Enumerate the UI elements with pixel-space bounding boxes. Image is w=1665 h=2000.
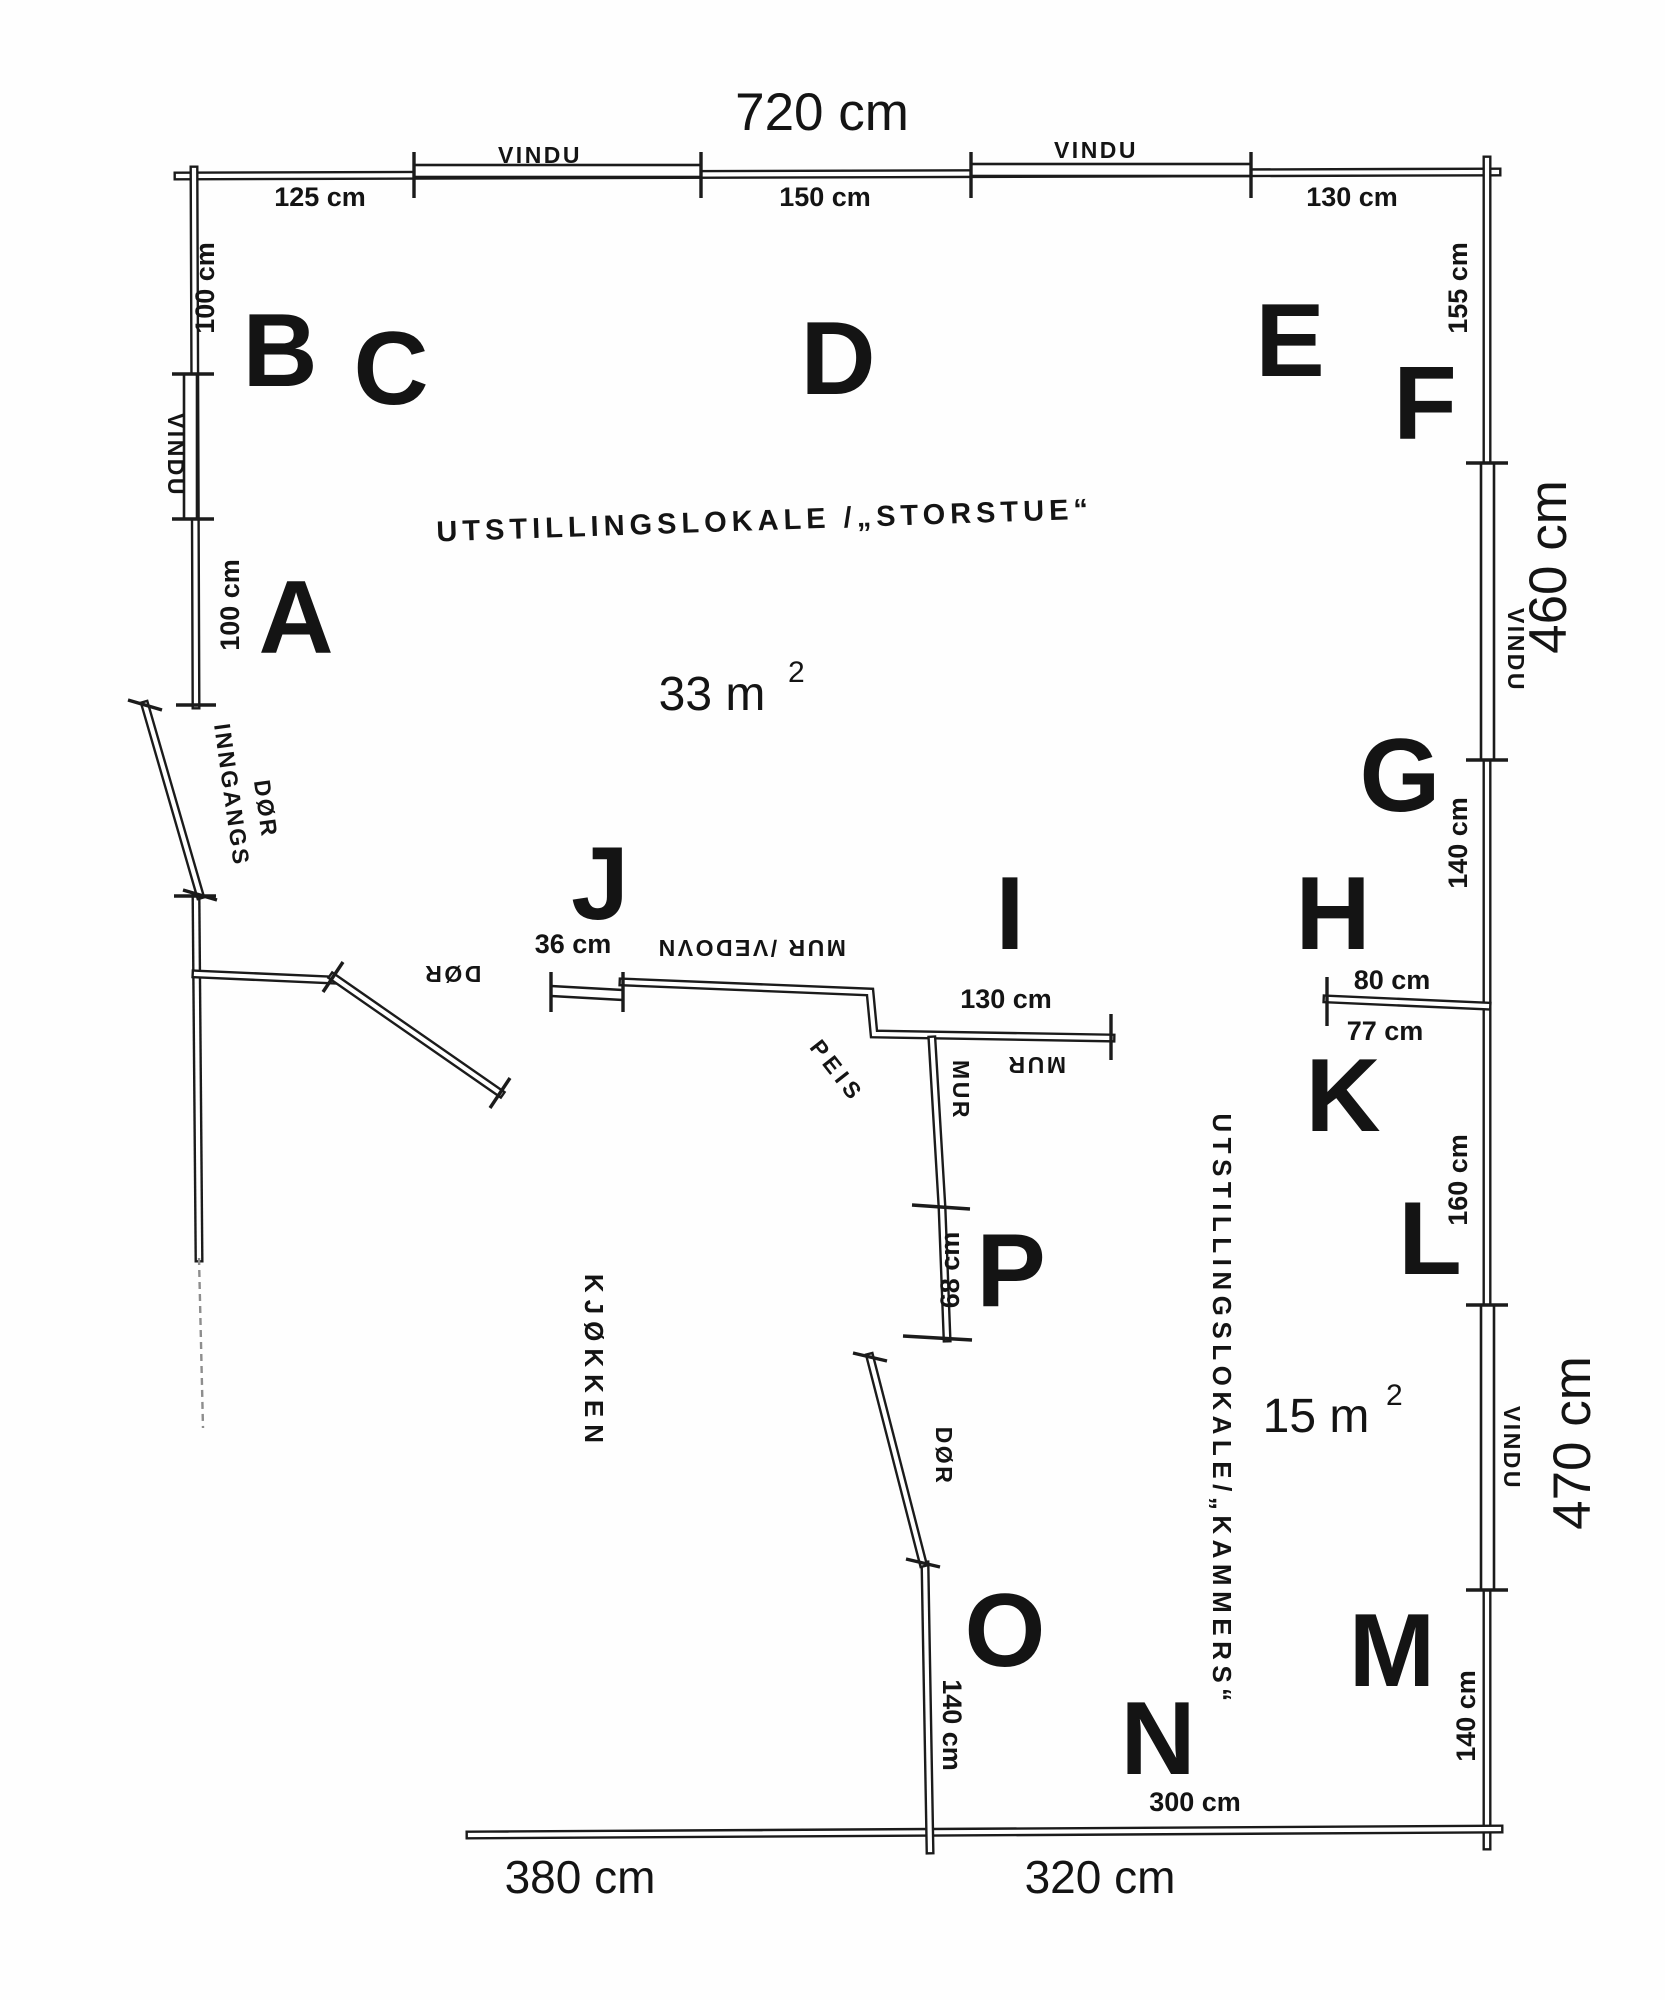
letter-n: N — [1120, 1681, 1195, 1797]
entrance-door-label-2: DØR — [249, 778, 283, 840]
letter-p: P — [976, 1213, 1045, 1329]
letter-b: B — [242, 293, 317, 409]
letter-k: K — [1305, 1038, 1380, 1154]
window-right-upper — [1481, 463, 1494, 760]
dim-bottom-380: 380 cm — [505, 1851, 656, 1903]
vindu-label-right-upper: VINDU — [1503, 608, 1529, 692]
dim-100-upper: 100 cm — [190, 242, 220, 334]
kammers-title: UTSTILLINGSLOKALE/„KAMMERS“ — [1207, 1113, 1237, 1706]
vedovn-offset-measure — [551, 972, 623, 1012]
dim-140-g: 140 cm — [1443, 797, 1473, 889]
floor-plan-page: UTSTILLINGSLOKALE /„STORSTUE“ 33 m 2 UTS… — [0, 0, 1665, 2000]
floor-plan-drawing: UTSTILLINGSLOKALE /„STORSTUE“ 33 m 2 UTS… — [0, 0, 1665, 2000]
letter-d: D — [800, 301, 875, 417]
dim-top-720: 720 cm — [735, 83, 909, 142]
vindu-label-top-left: VINDU — [498, 142, 582, 168]
letter-l: L — [1398, 1181, 1462, 1297]
dim-155: 155 cm — [1443, 242, 1473, 334]
kammers-area-sup: 2 — [1386, 1379, 1403, 1412]
dim-68: 68 cm — [935, 1232, 965, 1309]
storstue-title: UTSTILLINGSLOKALE /„STORSTUE“ — [436, 494, 1094, 549]
kammers-area: 15 m — [1263, 1390, 1370, 1443]
dim-130-mur: 130 cm — [960, 984, 1052, 1014]
dim-right-470: 470 cm — [1543, 1356, 1602, 1530]
letter-c: C — [353, 311, 428, 427]
kammers-door-label: DØR — [931, 1427, 957, 1486]
kitchen-door-label: DØR — [423, 961, 482, 987]
letter-f: F — [1393, 346, 1457, 462]
entrance-door-label-1: INNGANGS — [209, 722, 255, 868]
letter-a: A — [258, 560, 333, 676]
dim-125: 125 cm — [274, 182, 366, 212]
dim-bottom-320: 320 cm — [1025, 1851, 1176, 1903]
window-top-right — [971, 164, 1251, 176]
letter-j: J — [571, 826, 629, 942]
dim-140-o: 140 cm — [937, 1679, 967, 1771]
letter-e: E — [1255, 283, 1324, 399]
storstue-area: 33 m — [659, 668, 766, 721]
window-right-lower — [1481, 1305, 1494, 1590]
vindu-label-right-lower: VINDU — [1499, 1406, 1525, 1490]
letter-h: H — [1295, 856, 1370, 972]
mur-vedovn-label: MUR /VEDOVN — [656, 935, 846, 961]
dim-100-lower: 100 cm — [215, 559, 245, 651]
entrance-door-leaf — [128, 700, 217, 900]
storstue-area-sup: 2 — [788, 656, 805, 689]
letter-g: G — [1360, 718, 1441, 834]
vindu-label-top-right: VINDU — [1054, 137, 1138, 163]
letter-o: O — [965, 1573, 1046, 1689]
dim-130-top: 130 cm — [1306, 182, 1398, 212]
vindu-label-left: VINDU — [163, 413, 189, 497]
kammers-door-leaf — [853, 1353, 940, 1567]
mur-horizontal-label: MUR — [1006, 1052, 1066, 1078]
letter-m: M — [1349, 1593, 1436, 1709]
fireplace-label: PEIS — [805, 1035, 870, 1108]
dim-150: 150 cm — [779, 182, 871, 212]
letter-i: I — [996, 856, 1025, 972]
kjokken-label: KJØKKEN — [579, 1274, 609, 1450]
dim-140-m: 140 cm — [1451, 1670, 1481, 1762]
mur-vertical-label: MUR — [948, 1060, 974, 1120]
